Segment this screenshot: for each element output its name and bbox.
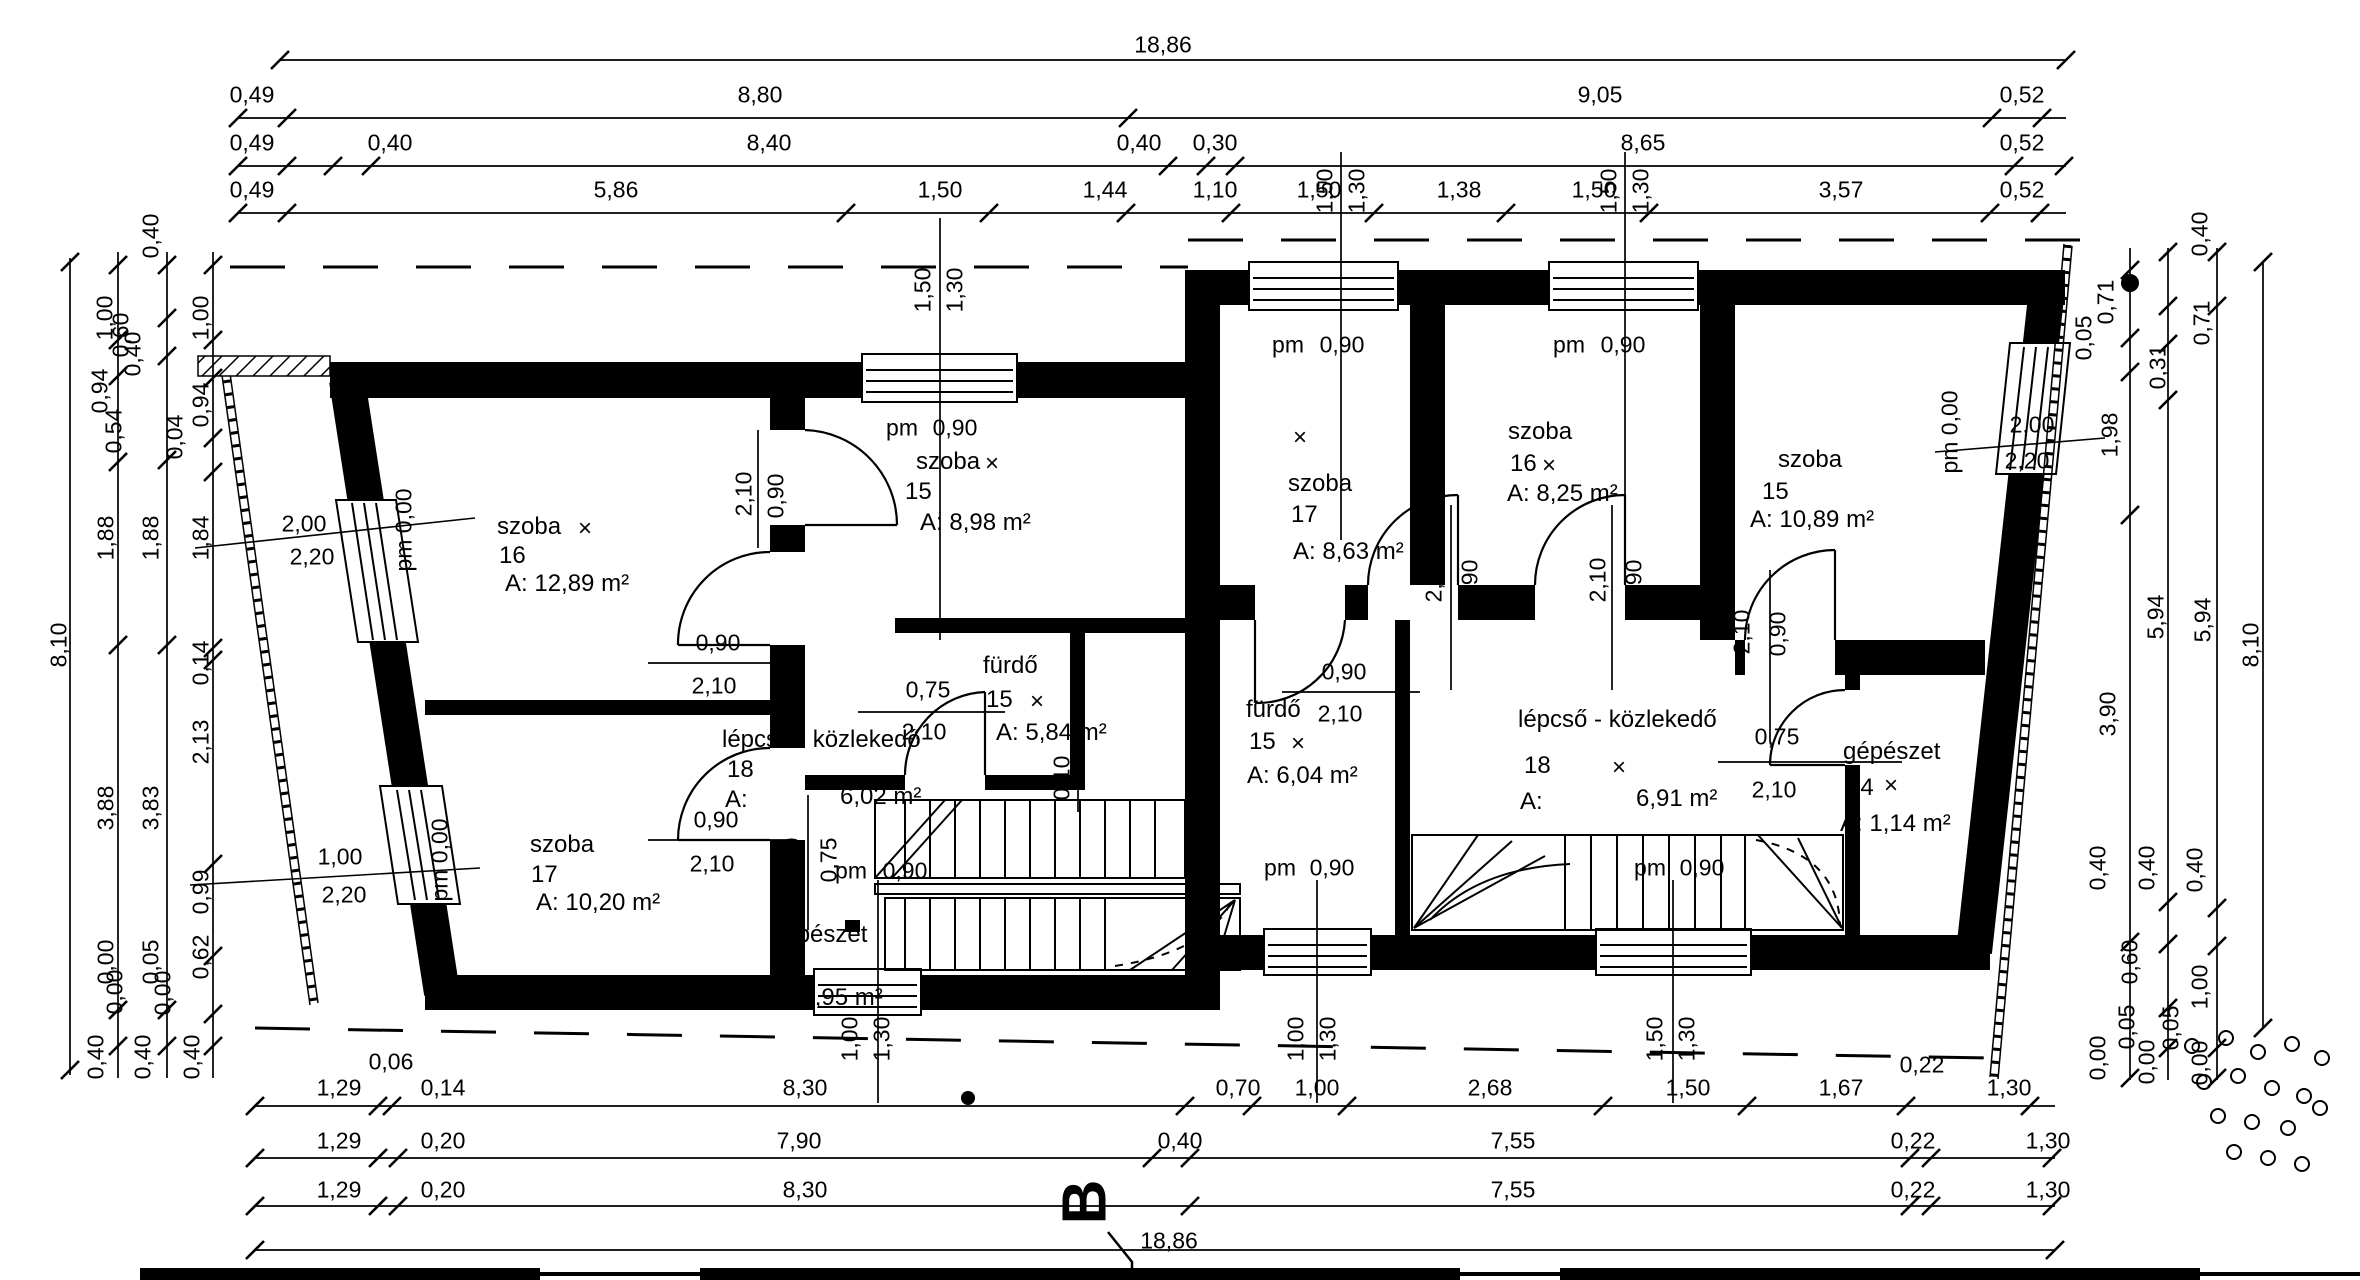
dim-label-rotated: 1,00 <box>190 296 213 341</box>
room-label-left-frd-15: fürdő <box>983 654 1038 678</box>
dim-label: 0,90 <box>1601 334 1646 357</box>
room-label-right-szoba-17: × <box>1293 426 1307 450</box>
dim-label-rotated: 0,90 <box>1767 612 1790 657</box>
section-marker-b: B <box>1050 1180 1121 1225</box>
dim-label: 3,57 <box>1819 179 1864 202</box>
dim-label: 2,10 <box>692 675 737 698</box>
dim-label: 1,50 <box>1666 1077 1711 1100</box>
dim-label: 0,20 <box>421 1130 466 1153</box>
dim-label-rotated: 1,98 <box>2099 413 2122 458</box>
dim-label-rotated: 0,05 <box>2073 316 2096 361</box>
dim-label-rotated: 1,30 <box>871 1017 894 1062</box>
floor-plan-drawing: szoba×16A: 12,89 m²szoba×15A: 8,98 m²für… <box>0 0 2360 1280</box>
dim-label: 1,10 <box>1193 179 1238 202</box>
dim-label-rotated: 1,30 <box>1317 1017 1340 1062</box>
dim-label-rotated: 2,10 <box>1587 558 1610 603</box>
room-label-right-gpszet-14: 14 <box>1847 776 1874 800</box>
dim-label: 1,50 <box>918 179 963 202</box>
dim-label-rotated: 2,13 <box>190 720 213 765</box>
dim-label-rotated: 0,71 <box>2095 280 2118 325</box>
room-label-right-lpcskzleked-18: 6,91 m² <box>1636 787 1717 811</box>
dim-label-rotated: 0,40 <box>2189 212 2212 257</box>
dim-label: 0,30 <box>1193 132 1238 155</box>
dim-label: 0,52 <box>2000 179 2045 202</box>
dim-label: 1,30 <box>1987 1077 2032 1100</box>
dim-label: 0,90 <box>883 860 928 883</box>
dim-label-rotated: 0,04 <box>164 415 187 460</box>
dim-label: 0,90 <box>1322 661 1367 684</box>
room-label-right-gpszet-14: gépészet <box>1843 740 1940 764</box>
room-label-right-szoba-15: A: 10,89 m² <box>1750 508 1874 532</box>
dim-label-rotated: 1,50 <box>1314 169 1337 214</box>
dim-label-rotated: 0,14 <box>190 641 213 686</box>
room-label-right-lpcskzleked-18: A: <box>1520 790 1543 814</box>
dim-label-rotated: 0,00 <box>2087 1036 2110 1081</box>
room-label-right-frd-15: 15 <box>1249 730 1276 754</box>
dim-label-rotated: 1,88 <box>95 516 118 561</box>
dim-label-rotated: 8,10 <box>2240 623 2263 668</box>
room-label-left-gpszet-14: A: 0,95 m² <box>772 986 883 1010</box>
room-label-left-gpszet-14: gépészet <box>770 923 867 947</box>
room-label-right-szoba-16: szoba <box>1508 420 1572 444</box>
dim-label: 1,38 <box>1437 179 1482 202</box>
dim-label-rotated: 0,90 <box>765 474 788 519</box>
dim-label: 1,29 <box>317 1130 362 1153</box>
dim-label-rotated: 0,05 <box>2160 1006 2183 1051</box>
room-label-left-szoba-16: A: 12,89 m² <box>505 572 629 596</box>
dim-label: 0,20 <box>421 1179 466 1202</box>
room-label-right-frd-15: × <box>1291 732 1305 756</box>
dim-label: 0,06 <box>369 1051 414 1074</box>
room-label-left-szoba-15: 15 <box>905 480 932 504</box>
dim-label: 2,10 <box>1752 779 1797 802</box>
dim-label-rotated: 0,00 <box>104 970 127 1015</box>
dim-label: 0,40 <box>1158 1130 1203 1153</box>
room-label-right-szoba-17: 17 <box>1291 503 1318 527</box>
dim-label: 0,40 <box>1117 132 1162 155</box>
dim-label-rotated: 0,60 <box>2119 940 2142 985</box>
dim-label: 8,80 <box>738 84 783 107</box>
dim-label: 5,86 <box>594 179 639 202</box>
dim-label: 0,90 <box>1320 334 1365 357</box>
dim-label-rotated: 0,54 <box>103 409 126 454</box>
dim-label-rotated: 0,62 <box>190 935 213 980</box>
dim-label: 1,00 <box>1295 1077 1340 1100</box>
dim-label: 1,29 <box>317 1077 362 1100</box>
dim-label: 2,20 <box>2005 450 2050 473</box>
dim-label-rotated: 0,90 <box>1459 560 1482 605</box>
dim-label-rotated: 0,00 <box>2189 1041 2212 1086</box>
room-label-left-szoba-15: szoba <box>916 450 980 474</box>
dim-label-rotated: 1,84 <box>190 516 213 561</box>
room-label-left-frd-15: 15 <box>986 688 1013 712</box>
dim-label-rotated: 1,30 <box>1630 169 1653 214</box>
dim-label: 7,55 <box>1491 1179 1536 1202</box>
labels-layer: szoba×16A: 12,89 m²szoba×15A: 8,98 m²für… <box>0 0 2360 1280</box>
dim-label: 0,52 <box>2000 84 2045 107</box>
room-label-left-szoba-15: × <box>985 452 999 476</box>
dim-label-rotated: 0,40 <box>2184 848 2207 893</box>
dim-label: 2,00 <box>282 513 327 536</box>
dim-label-rotated: 0,40 <box>122 332 145 377</box>
dim-label: 8,30 <box>783 1179 828 1202</box>
dim-label: 8,40 <box>747 132 792 155</box>
dim-label-rotated: 2,10 <box>781 838 804 883</box>
dim-label: 7,90 <box>777 1130 822 1153</box>
dim-label: 8,65 <box>1621 132 1666 155</box>
dim-label: pm <box>886 417 918 440</box>
dim-label: 0,70 <box>1216 1077 1261 1100</box>
dim-label: 0,90 <box>1680 857 1725 880</box>
dim-label-rotated: 0,94 <box>89 369 112 414</box>
room-label-right-lpcskzleked-18: 18 <box>1524 754 1551 778</box>
dim-label-rotated: 0,75 <box>818 838 841 883</box>
dim-label: pm <box>1553 334 1585 357</box>
dim-label-rotated: 1,50 <box>1644 1017 1667 1062</box>
room-label-left-frd-15: × <box>1030 690 1044 714</box>
dim-label: 2,10 <box>690 853 735 876</box>
dim-label-rotated: 2,10 <box>1731 610 1754 655</box>
dim-label-rotated: 1,00 <box>839 1017 862 1062</box>
dim-label: 0,22 <box>1891 1179 1936 1202</box>
dim-label-rotated: 0,99 <box>190 870 213 915</box>
dim-label-rotated: 1,00 <box>2189 965 2212 1010</box>
dim-label: 1,67 <box>1819 1077 1864 1100</box>
dim-label: 7,55 <box>1491 1130 1536 1153</box>
room-label-left-szoba-16: 16 <box>499 544 526 568</box>
dim-label: pm <box>1634 857 1666 880</box>
dim-label-rotated: 0,90 <box>1623 560 1646 605</box>
dim-label-rotated: 1,00 <box>1285 1017 1308 1062</box>
dim-label-rotated: pm 0,00 <box>429 818 452 901</box>
room-label-right-szoba-16: × <box>1542 454 1556 478</box>
dim-label: 2,00 <box>2010 414 2055 437</box>
room-label-right-szoba-15: 15 <box>1762 480 1789 504</box>
room-label-left-szoba-17: 17 <box>531 863 558 887</box>
dim-label-rotated: 0,40 <box>85 1035 108 1080</box>
room-label-right-szoba-16: A: 8,25 m² <box>1507 482 1618 506</box>
dim-label: 0,90 <box>1310 857 1355 880</box>
dim-label-rotated: 0,31 <box>2147 345 2170 390</box>
dim-label: 1,30 <box>2026 1130 2071 1153</box>
dim-label-rotated: 5,94 <box>2192 598 2215 643</box>
dim-label-rotated: 0,40 <box>140 214 163 259</box>
room-label-right-lpcskzleked-18: lépcső - közlekedő <box>1518 708 1717 732</box>
dim-label: 0,75 <box>906 679 951 702</box>
dim-label-rotated: 1,50 <box>912 268 935 313</box>
dim-label: 1,44 <box>1083 179 1128 202</box>
room-label-left-szoba-16: szoba <box>497 515 561 539</box>
room-label-right-gpszet-14: A: 1,14 m² <box>1840 812 1951 836</box>
dim-label-rotated: 1,88 <box>140 516 163 561</box>
dim-label: 0,49 <box>230 179 275 202</box>
room-label-right-szoba-15: szoba <box>1778 448 1842 472</box>
dim-label: 18,86 <box>1140 1230 1198 1253</box>
dim-label: 0,75 <box>1755 726 1800 749</box>
dim-label: 0,90 <box>694 809 739 832</box>
dim-label: 0,49 <box>230 84 275 107</box>
dim-label-rotated: 3,83 <box>140 786 163 831</box>
dim-label: pm <box>1272 334 1304 357</box>
dim-label-rotated: 3,90 <box>2097 692 2120 737</box>
dim-label: 0,40 <box>368 132 413 155</box>
room-label-right-szoba-17: A: 8,63 m² <box>1293 540 1404 564</box>
dim-label-rotated: 3,88 <box>95 786 118 831</box>
room-label-right-gpszet-14: × <box>1884 774 1898 798</box>
dim-label-rotated: 1,50 <box>1598 169 1621 214</box>
dim-label: 2,20 <box>290 546 335 569</box>
dim-label-rotated: 0,40 <box>181 1035 204 1080</box>
room-label-right-szoba-17: szoba <box>1288 472 1352 496</box>
dim-label: 0,52 <box>2000 132 2045 155</box>
room-label-right-frd-15: fürdő <box>1246 698 1301 722</box>
room-label-left-szoba-15: A: 8,98 m² <box>920 511 1031 535</box>
room-label-right-frd-15: A: 6,04 m² <box>1247 764 1358 788</box>
dim-label: 2,20 <box>322 884 367 907</box>
room-label-right-szoba-16: 16 <box>1510 452 1537 476</box>
dim-label-rotated: 2,10 <box>1423 558 1446 603</box>
dim-label: 2,10 <box>902 721 947 744</box>
dim-label: 2,10 <box>1318 703 1363 726</box>
dim-label-rotated: 0,40 <box>2136 846 2159 891</box>
dim-label: 0,22 <box>1900 1054 1945 1077</box>
dim-label: 0,49 <box>230 132 275 155</box>
dim-label: 18,86 <box>1134 34 1192 57</box>
room-label-left-frd-15: A: 5,84 m² <box>996 721 1107 745</box>
dim-label-rotated: 0,71 <box>2191 301 2214 346</box>
dim-label-rotated: 0,10 <box>1051 756 1074 801</box>
dim-label-rotated: 1,30 <box>944 268 967 313</box>
dim-label: pm <box>1264 857 1296 880</box>
dim-label-rotated: 0,94 <box>190 383 213 428</box>
dim-label-rotated: 2,10 <box>733 472 756 517</box>
dim-label: 1,30 <box>2026 1179 2071 1202</box>
dim-label-rotated: pm 0,00 <box>1939 390 1962 473</box>
room-label-left-szoba-16: × <box>578 517 592 541</box>
dim-label-rotated: 0,40 <box>2087 846 2110 891</box>
room-label-left-lpcskzleked-18: 6,02 m² <box>840 785 921 809</box>
dim-label-rotated: 1,30 <box>1346 169 1369 214</box>
dim-label-rotated: 0,40 <box>132 1035 155 1080</box>
dim-label-rotated: 8,10 <box>48 623 71 668</box>
room-label-right-lpcskzleked-18: × <box>1612 756 1626 780</box>
dim-label: 1,00 <box>318 846 363 869</box>
room-label-left-lpcskzleked-18: lépcső - közlekedő <box>722 728 921 752</box>
dim-label: 2,68 <box>1468 1077 1513 1100</box>
dim-label: 0,14 <box>421 1077 466 1100</box>
dim-label-rotated: pm 0,00 <box>393 488 416 571</box>
dim-label-rotated: 0,00 <box>152 971 175 1016</box>
room-label-left-szoba-17: szoba <box>530 833 594 857</box>
dim-label-rotated: 1,30 <box>1676 1017 1699 1062</box>
dim-label: 9,05 <box>1578 84 1623 107</box>
dim-label: 0,90 <box>933 417 978 440</box>
room-label-left-szoba-17: A: 10,20 m² <box>536 891 660 915</box>
dim-label: 1,29 <box>317 1179 362 1202</box>
room-label-left-lpcskzleked-18: 18 <box>727 758 754 782</box>
dim-label: 0,90 <box>696 632 741 655</box>
dim-label: 0,22 <box>1891 1130 1936 1153</box>
dim-label: 8,30 <box>783 1077 828 1100</box>
dim-label-rotated: 0,00 <box>2136 1040 2159 1085</box>
room-label-left-gpszet-14: 14 <box>775 954 802 978</box>
dim-label-rotated: 5,94 <box>2145 595 2168 640</box>
